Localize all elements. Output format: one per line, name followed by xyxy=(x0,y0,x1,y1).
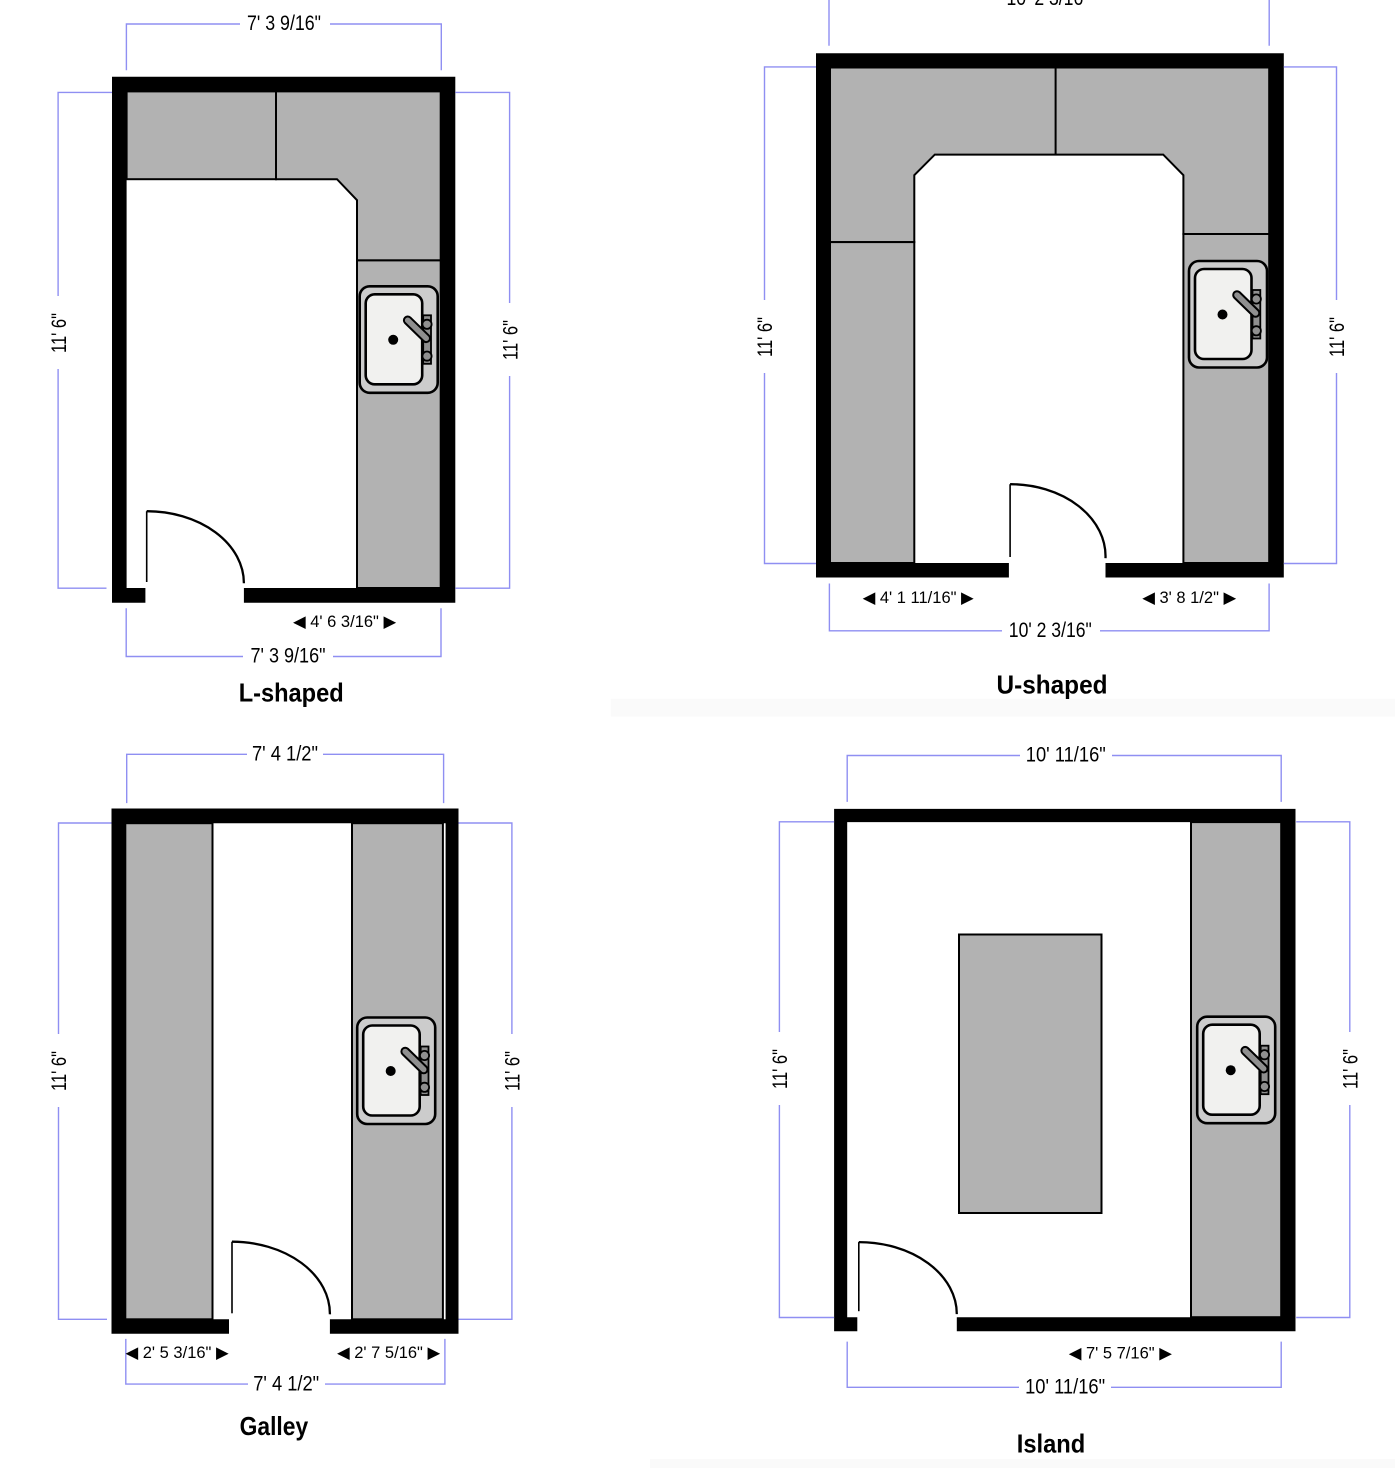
svg-text:10' 2 3/16": 10' 2 3/16" xyxy=(1009,619,1092,642)
svg-text:7' 4 1/2": 7' 4 1/2" xyxy=(253,1373,319,1396)
svg-text:10' 11/16": 10' 11/16" xyxy=(1025,1376,1105,1399)
svg-text:11' 6": 11' 6" xyxy=(754,317,777,357)
svg-text:11' 6": 11' 6" xyxy=(1326,317,1349,357)
svg-text:◀ 4' 1 11/16" ▶: ◀ 4' 1 11/16" ▶ xyxy=(863,589,975,607)
svg-text:11' 6": 11' 6" xyxy=(48,1051,71,1091)
svg-text:7' 3 9/16": 7' 3 9/16" xyxy=(247,12,321,35)
svg-text:◀ 4' 6 3/16" ▶: ◀ 4' 6 3/16" ▶ xyxy=(293,613,398,631)
svg-text:10' 11/16": 10' 11/16" xyxy=(1026,744,1106,767)
svg-text:11' 6": 11' 6" xyxy=(769,1049,792,1089)
svg-text:◀ 2' 7 5/16" ▶: ◀ 2' 7 5/16" ▶ xyxy=(337,1344,442,1362)
svg-text:◀ 3' 8 1/2" ▶: ◀ 3' 8 1/2" ▶ xyxy=(1142,589,1237,607)
svg-text:11' 6": 11' 6" xyxy=(48,313,71,353)
svg-text:7' 3 9/16": 7' 3 9/16" xyxy=(251,645,326,668)
svg-text:Galley: Galley xyxy=(240,1411,309,1441)
svg-text:Island: Island xyxy=(1017,1428,1086,1458)
svg-text:11' 6": 11' 6" xyxy=(499,320,522,360)
svg-text:◀ 2' 5 3/16" ▶: ◀ 2' 5 3/16" ▶ xyxy=(125,1344,230,1362)
svg-text:11' 6": 11' 6" xyxy=(1340,1049,1363,1089)
svg-text:◀ 7' 5 7/16" ▶: ◀ 7' 5 7/16" ▶ xyxy=(1069,1345,1174,1363)
svg-text:10' 2 3/16": 10' 2 3/16" xyxy=(1007,0,1090,10)
svg-text:U-shaped: U-shaped xyxy=(997,670,1108,700)
svg-text:L-shaped: L-shaped xyxy=(239,678,344,708)
svg-text:11' 6": 11' 6" xyxy=(502,1051,525,1091)
svg-text:7' 4 1/2": 7' 4 1/2" xyxy=(252,743,318,766)
